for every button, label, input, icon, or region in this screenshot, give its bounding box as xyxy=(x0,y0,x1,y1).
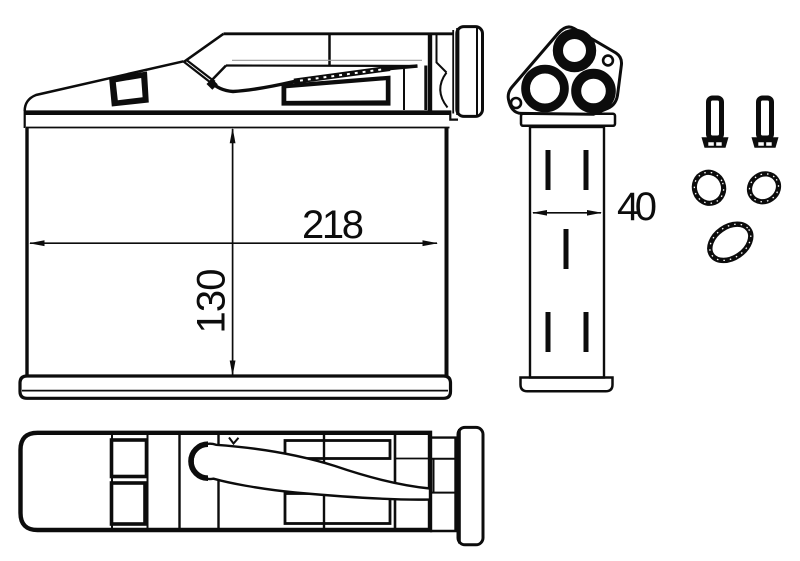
svg-text:130: 130 xyxy=(190,269,234,334)
svg-text:40: 40 xyxy=(617,185,657,229)
svg-text:218: 218 xyxy=(302,203,364,247)
